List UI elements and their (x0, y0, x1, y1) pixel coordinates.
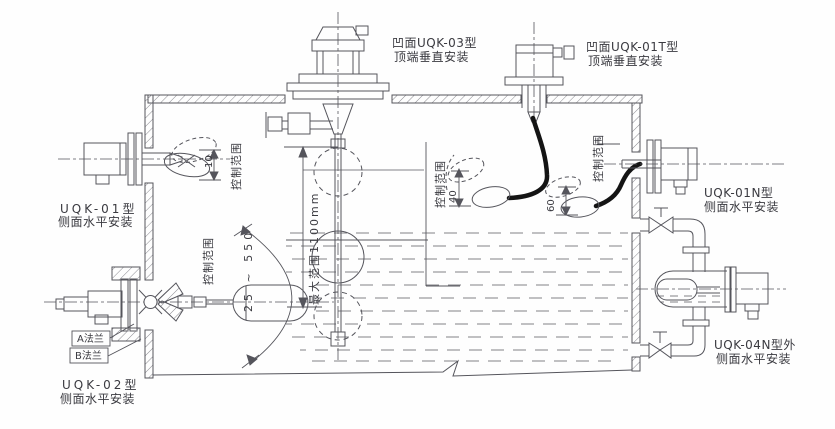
uqk01t-float (471, 184, 512, 210)
uqk01-label-mount: 侧面水平安装 (58, 214, 133, 229)
uqk01n-range-value: 60 (546, 199, 557, 212)
control-range-label-uqk01: 控制范围 (229, 142, 243, 190)
uqk01-label-model: UQK-01型 (60, 202, 137, 216)
uqk01t-float-high-position (445, 153, 488, 187)
installation-diagram-svg: 最大范围1100mm 控制范围 40 (0, 0, 835, 429)
flange-b-label: B法兰 (75, 349, 102, 362)
uqk04n-label-mount: 侧面水平安装 (716, 351, 791, 366)
uqk02-range-value: 25 ~ 550 (242, 229, 255, 312)
uqk02-label-mount: 侧面水平安装 (60, 391, 135, 406)
uqk02-label-model: UQK-02型 (62, 378, 139, 392)
upper-isolation-valve (649, 208, 673, 233)
max-range-label: 最大范围1100mm (307, 192, 321, 305)
lower-isolation-valve (649, 332, 671, 358)
uqk03-device (266, 12, 389, 362)
uqk01t-label-model: 凹面UQK-01T型 (586, 40, 679, 54)
uqk02-device (44, 267, 334, 341)
control-range-label-center: 控制范围 (433, 160, 447, 208)
uqk04n-label-model: UQK-04N型外 (714, 338, 796, 352)
uqk04n-assembly (636, 208, 786, 358)
uqk01n-label-model: UQK-01N型 (704, 186, 773, 200)
uqk01-range-value: 10 (204, 155, 215, 168)
uqk01t-range-value: 40 (448, 190, 459, 203)
uqk04n-float (657, 279, 697, 300)
uqk03-label-model: 凹面UQK-03型 (392, 36, 477, 50)
flange-a-label: A法兰 (77, 332, 104, 345)
uqk01t-cable (509, 118, 547, 198)
uqk01t-label-mount: 顶端垂直安装 (588, 53, 663, 68)
control-range-label-uqk02: 控制范围 (201, 237, 215, 285)
uqk01n-label-mount: 侧面水平安装 (704, 199, 779, 214)
control-range-label-right: 控制范围 (591, 134, 605, 182)
tank-shell (145, 95, 642, 378)
tank-bottom-break-line (153, 361, 632, 376)
uqk01t-device (505, 22, 574, 124)
uqk03-label-mount: 顶端垂直安装 (394, 49, 469, 64)
tank-installation-diagram: 最大范围1100mm 控制范围 40 (0, 0, 835, 429)
